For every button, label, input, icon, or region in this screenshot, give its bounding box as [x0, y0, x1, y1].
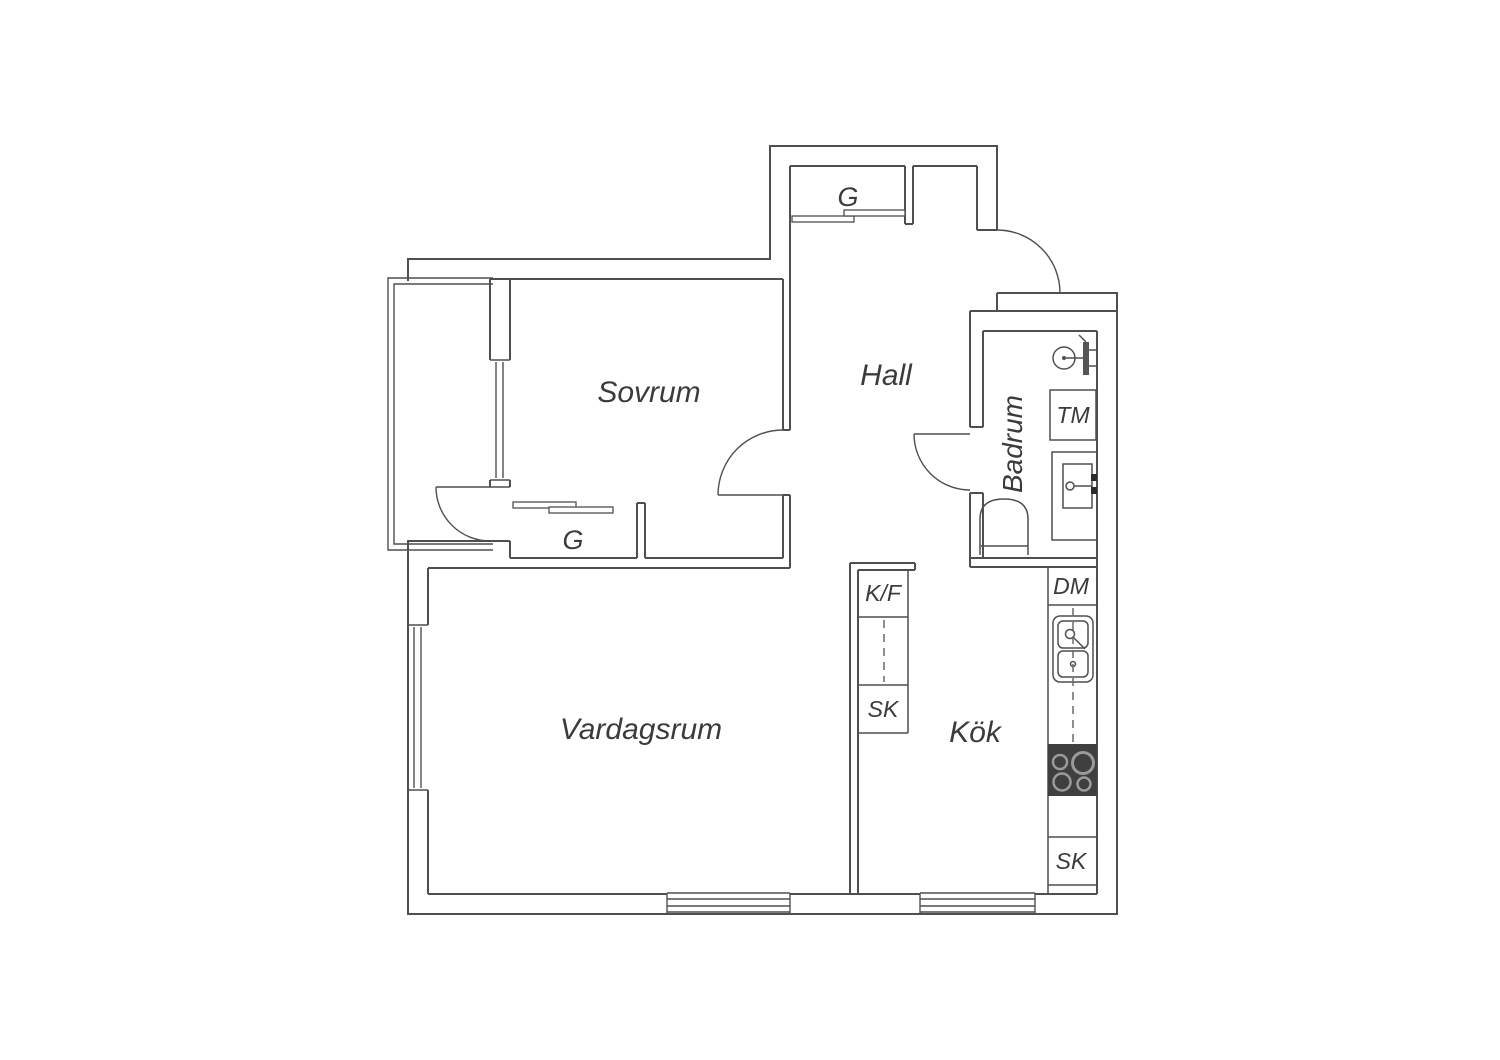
window-kok-bottom [920, 893, 1035, 913]
window-vardagsrum-bottom [667, 893, 790, 913]
label-sk-right: SK [1056, 848, 1088, 874]
floor-plan-page: Sovrum Hall Vardagsrum Kök Badrum G G TM… [0, 0, 1500, 1060]
label-tm: TM [1056, 402, 1090, 428]
bedroom-door-arc [718, 430, 783, 495]
toilet-icon [980, 499, 1028, 555]
floor-plan-image: Sovrum Hall Vardagsrum Kök Badrum G G TM… [0, 0, 1500, 1060]
label-sk-left: SK [868, 696, 900, 722]
window-symbols [408, 360, 1035, 913]
exterior-walls [408, 146, 1117, 914]
label-kok: Kök [949, 716, 1003, 749]
entry-door-arc [997, 230, 1060, 293]
window-vardagsrum-left [408, 625, 428, 790]
bathroom-sink-icon [1052, 452, 1097, 540]
room-labels: Sovrum Hall Vardagsrum Kök Badrum G G TM… [560, 182, 1091, 874]
label-kf: K/F [865, 580, 903, 606]
label-dm: DM [1053, 573, 1090, 599]
shower-icon [1053, 335, 1097, 375]
window-sovrum [490, 360, 510, 480]
sliding-door-sovrum-closet [513, 502, 613, 513]
label-badrum: Badrum [997, 395, 1028, 493]
balcony-door-arc [436, 487, 510, 541]
bathroom-door-arc [914, 434, 970, 490]
label-hall: Hall [860, 359, 913, 392]
stove-icon [1048, 744, 1097, 796]
label-closet-top: G [837, 182, 858, 212]
label-vardagsrum: Vardagsrum [560, 713, 722, 746]
label-closet-sovrum: G [562, 525, 583, 555]
label-sovrum: Sovrum [597, 376, 700, 409]
